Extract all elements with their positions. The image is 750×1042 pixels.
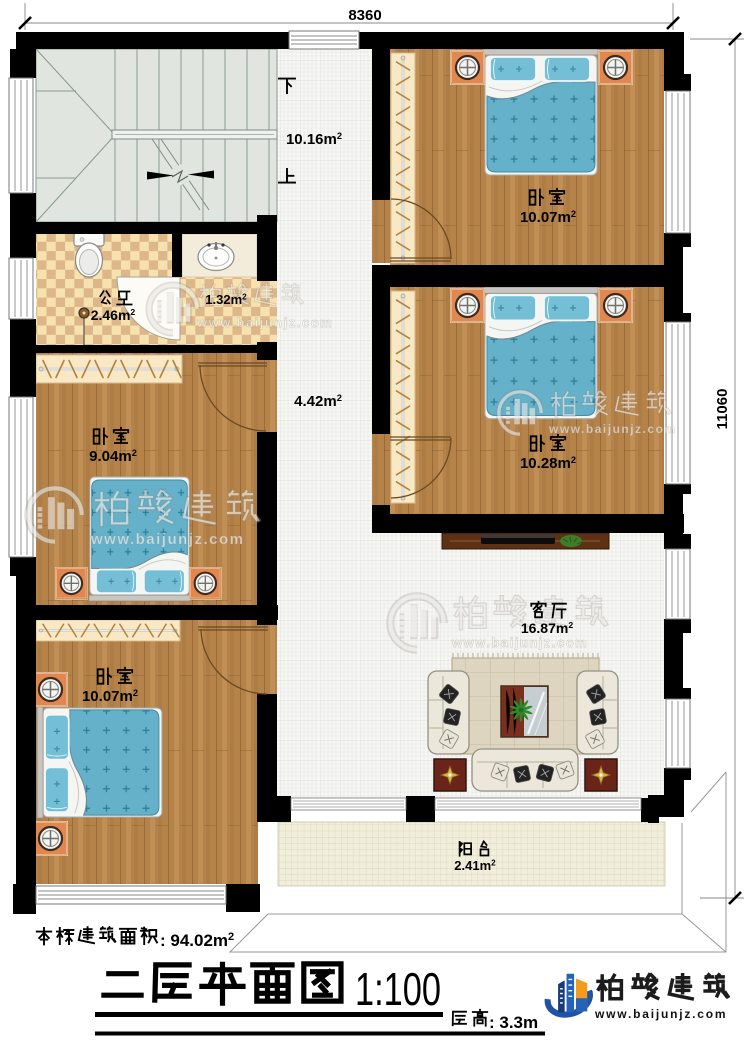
- svg-text:1:100: 1:100: [355, 963, 441, 1015]
- svg-text:www.baijunjz.com: www.baijunjz.com: [196, 315, 333, 330]
- svg-text:11060: 11060: [714, 389, 731, 430]
- svg-text:2.46m2: 2.46m2: [91, 307, 136, 323]
- svg-text:www.baijunjz.com: www.baijunjz.com: [90, 531, 244, 548]
- svg-text:: 94.02m2: : 94.02m2: [160, 931, 234, 950]
- svg-text:www.baijunjz.com: www.baijunjz.com: [548, 422, 677, 436]
- svg-text:2.41m2: 2.41m2: [454, 858, 496, 873]
- svg-text:8360: 8360: [348, 7, 381, 24]
- svg-text:4.42m2: 4.42m2: [294, 393, 342, 410]
- svg-text:9.04m2: 9.04m2: [89, 448, 137, 465]
- svg-text:10.28m2: 10.28m2: [520, 455, 576, 472]
- svg-text:10.16m2: 10.16m2: [286, 131, 342, 148]
- svg-text:www.baijunjz.com: www.baijunjz.com: [594, 1007, 727, 1021]
- svg-text:16.87m2: 16.87m2: [521, 620, 573, 636]
- svg-text:www.baijunjz.com: www.baijunjz.com: [451, 635, 588, 650]
- svg-text:: 3.3m: : 3.3m: [489, 1013, 538, 1032]
- svg-text:10.07m2: 10.07m2: [82, 688, 138, 705]
- svg-text:1.32m2: 1.32m2: [205, 292, 247, 307]
- svg-text:10.07m2: 10.07m2: [520, 209, 576, 226]
